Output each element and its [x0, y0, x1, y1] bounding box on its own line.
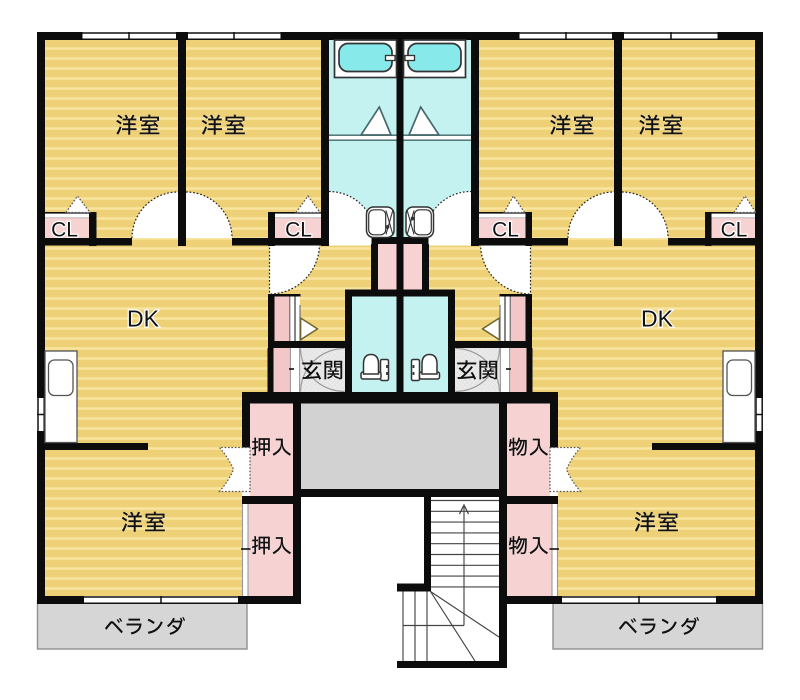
- svg-text:CL: CL: [285, 218, 312, 241]
- svg-text:DK: DK: [127, 306, 160, 332]
- svg-text:DK: DK: [641, 306, 674, 332]
- svg-text:CL: CL: [51, 218, 78, 241]
- svg-text:CL: CL: [721, 218, 748, 241]
- svg-text:CL: CL: [492, 218, 519, 241]
